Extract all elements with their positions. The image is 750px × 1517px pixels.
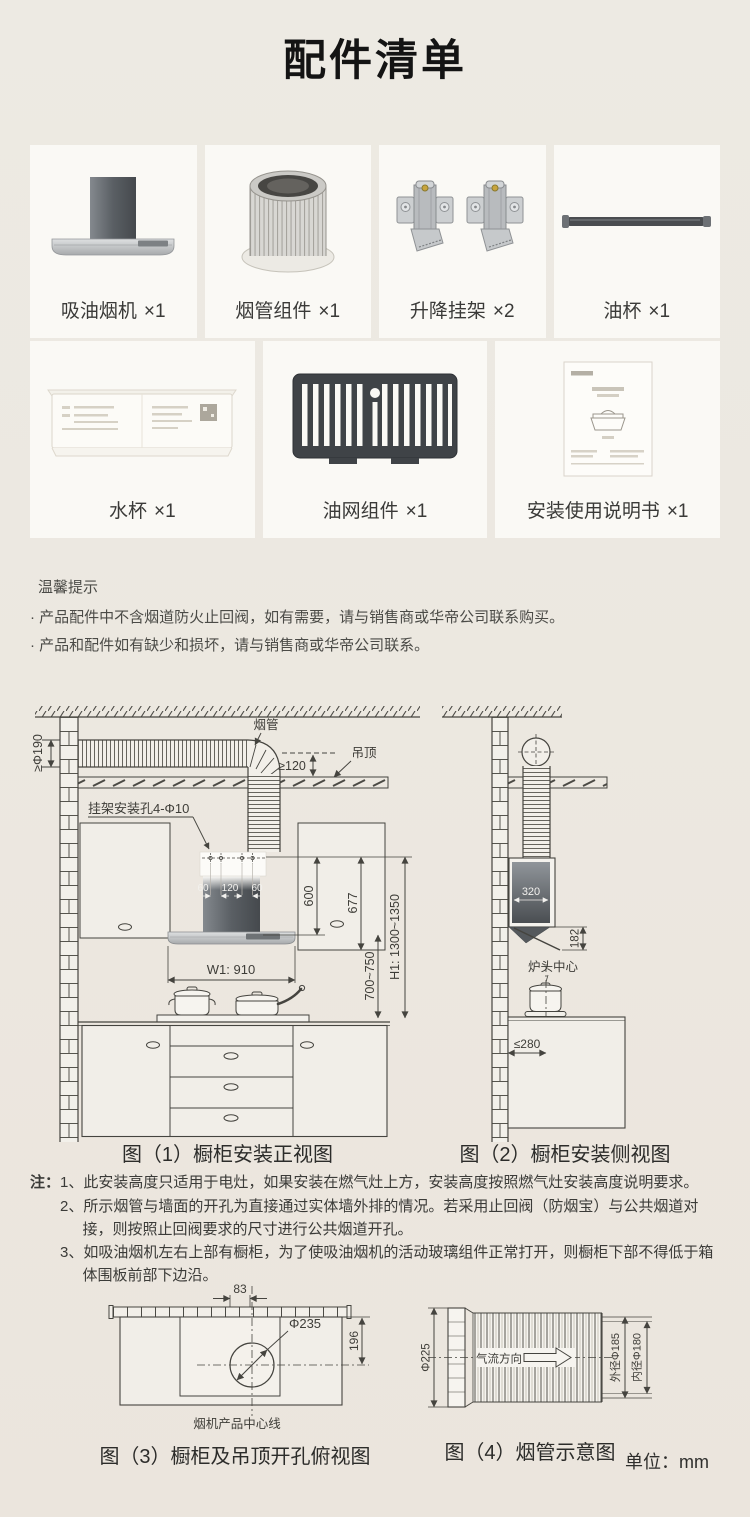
grease-filter-image	[263, 341, 488, 496]
unit-label: 单位：mm	[625, 1448, 709, 1474]
dim-677: 677	[346, 893, 360, 914]
hole-span-mid: 120	[222, 883, 239, 894]
accessory-list-page: 配件清单 吸油烟机×1	[0, 0, 750, 1517]
range-hood-image	[30, 145, 197, 296]
duct-label: 烟管	[253, 717, 278, 732]
ceiling-label: 吊顶	[351, 746, 377, 760]
notes-prefix: 注：	[30, 1172, 60, 1289]
accessory-grid-row1: 吸油烟机×1 烟管组件×1	[30, 145, 720, 338]
accessory-label: 安装使用说明书×1	[495, 496, 720, 523]
figure3-cutout-top-view-diagram: 83 Φ235 196 烟机产品中心线	[85, 1283, 385, 1438]
dim-196: 196	[347, 1331, 361, 1351]
hole-diameter-dim: Φ235	[289, 1316, 321, 1331]
glass-opening-dim: 182	[570, 929, 582, 948]
warm-tips-item: · 产品配件中不含烟道防火止回阀，如有需要，请与销售商或华帝公司联系购买。	[30, 604, 718, 632]
clearance-dim: ≥120	[278, 759, 306, 773]
accessory-card-water-tray: 水杯×1	[30, 341, 255, 538]
figure4-duct-schematic-diagram: 气流方向 Φ225 外径Φ185 内径Φ180	[420, 1292, 740, 1427]
figure3-caption: 图（3）橱柜及吊顶开孔俯视图	[85, 1440, 385, 1469]
duct-diameter-dim: ≥Φ190	[31, 734, 45, 772]
figure2-caption: 图（2）橱柜安装侧视图	[445, 1138, 685, 1167]
accessory-card-exhaust-duct: 烟管组件×1	[205, 145, 372, 338]
accessory-card-grease-filter: 油网组件×1	[263, 341, 488, 538]
warm-tips: 温馨提示 · 产品配件中不含烟道防火止回阀，如有需要，请与销售商或华帝公司联系购…	[38, 574, 718, 659]
accessory-label: 烟管组件×1	[205, 296, 372, 323]
figure2-side-view-diagram: 炉头中心 ≤280 182 320	[440, 700, 690, 1155]
page-title: 配件清单	[0, 26, 750, 88]
notes-list: 1、此安装高度只适用于电灶，如果安装在燃气灶上方，安装高度按照燃气灶安装高度说明…	[60, 1172, 724, 1289]
warm-tips-title: 温馨提示	[38, 574, 718, 602]
burner-center-label: 炉头中心	[528, 959, 579, 974]
accessory-card-range-hood: 吸油烟机×1	[30, 145, 197, 338]
figure4-caption: 图（4）烟管示意图	[425, 1436, 635, 1465]
accessory-grid-row2: 水杯×1	[30, 341, 720, 538]
figure1-caption: 图（1）橱柜安装正视图	[30, 1138, 425, 1167]
lift-brackets-image	[379, 145, 546, 296]
installation-notes: 注： 1、此安装高度只适用于电灶，如果安装在燃气灶上方，安装高度按照燃气灶安装高…	[30, 1172, 724, 1289]
note-item: 1、此安装高度只适用于电灶，如果安装在燃气灶上方，安装高度按照燃气灶安装高度说明…	[60, 1172, 724, 1195]
note-item: 2、所示烟管与墙面的开孔为直接通过实体墙外排的情况。若采用止回阀（防烟宝）与公共…	[60, 1196, 724, 1242]
hood-depth-dim: 320	[522, 886, 540, 898]
airflow-direction-label: 气流方向	[476, 1352, 522, 1366]
product-centerline-label: 烟机产品中心线	[193, 1416, 281, 1431]
wall-distance-dim: ≤280	[514, 1037, 541, 1051]
duct-dia-225-dim: Φ225	[421, 1343, 433, 1371]
bracket-holes-label: 挂架安装孔4-Φ10	[88, 801, 189, 816]
cutout-width-dim: 83	[233, 1283, 247, 1296]
instruction-manual-image	[495, 341, 720, 496]
accessory-card-lift-brackets: 升降挂架×2	[379, 145, 546, 338]
water-tray-image	[30, 341, 255, 496]
figure1-front-view-diagram: 烟管 吊顶 ≥120 ≥Φ190 挂架安装孔4-Φ10 W1: 910 600 …	[30, 700, 425, 1155]
accessory-label: 油网组件×1	[263, 496, 488, 523]
accessory-card-manual: 安装使用说明书×1	[495, 341, 720, 538]
accessory-label: 油杯×1	[554, 296, 721, 323]
hole-span-right: 60	[251, 883, 263, 894]
outer-dia-dim: 外径Φ185	[609, 1333, 622, 1382]
accessory-label: 升降挂架×2	[379, 296, 546, 323]
exhaust-duct-image	[205, 145, 372, 296]
hole-span-left: 60	[197, 883, 209, 894]
accessory-label: 吸油烟机×1	[30, 296, 197, 323]
inner-dia-dim: 内径Φ180	[630, 1333, 644, 1382]
note-item: 3、如吸油烟机左右上部有橱柜，为了使吸油烟机的活动玻璃组件正常打开，则橱柜下部不…	[60, 1242, 724, 1288]
warm-tips-item: · 产品和配件如有缺少和损坏，请与销售商或华帝公司联系。	[30, 632, 718, 660]
oil-cup-image	[554, 145, 721, 296]
dim-600: 600	[302, 886, 316, 907]
dim-h1: H1: 1300~1350	[388, 894, 402, 980]
accessory-card-oil-cup: 油杯×1	[554, 145, 721, 338]
accessory-label: 水杯×1	[30, 496, 255, 523]
w1-dim: W1: 910	[207, 962, 255, 977]
dim-height-range: 700~750	[363, 951, 377, 1000]
